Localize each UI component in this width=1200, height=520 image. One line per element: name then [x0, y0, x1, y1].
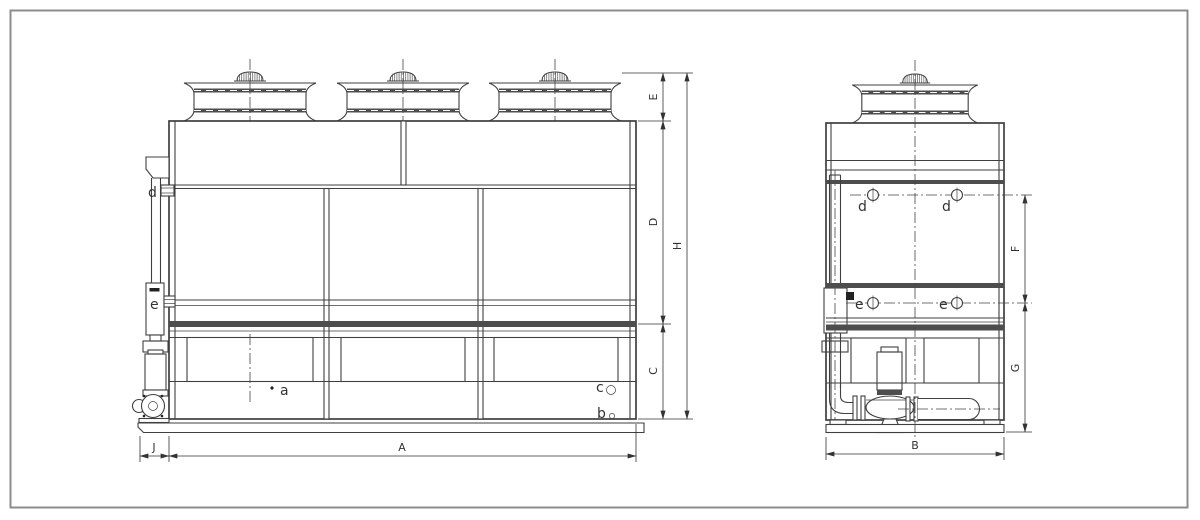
dim-label-A: A	[398, 441, 406, 454]
inlet-bracket	[146, 157, 169, 178]
port-label-e-side-1: e	[855, 297, 864, 313]
dim-label-F: F	[1009, 246, 1022, 252]
valve-box-slot	[150, 288, 160, 292]
dim-label-D: D	[647, 218, 660, 226]
fan-2	[337, 72, 469, 121]
port-label-c: c	[596, 380, 604, 396]
side-foot-left	[830, 420, 846, 425]
pump-neck	[150, 335, 161, 341]
eliminator-band	[169, 321, 636, 327]
fan-3	[489, 72, 621, 121]
side-view: d d e e	[822, 60, 1032, 460]
port-label-d-side-1: d	[858, 199, 867, 215]
coil-mullion-2	[478, 189, 483, 420]
dim-label-G: G	[1009, 364, 1022, 373]
coil-mullion-1	[324, 189, 329, 420]
dim-label-H: H	[671, 242, 684, 250]
base-channel	[138, 423, 644, 433]
dim-label-J: J	[151, 441, 155, 454]
fan-1	[184, 72, 316, 121]
port-label-a: a	[280, 383, 289, 399]
port-label-e-front: e	[150, 297, 159, 313]
port-label-e-side-2: e	[939, 297, 948, 313]
port-e-stub	[164, 296, 175, 307]
front-view: a c b d e	[133, 59, 694, 462]
drawing-sheet: a c b d e	[0, 0, 1200, 520]
pump-base	[139, 419, 169, 423]
dim-label-B: B	[911, 439, 919, 452]
port-label-d-side-2: d	[942, 199, 951, 215]
sensor-square	[846, 292, 854, 300]
cooling-tower-drawing: a c b d e	[0, 0, 1200, 520]
port-label-d-front: d	[148, 185, 157, 201]
dim-label-E: E	[647, 93, 660, 100]
plenum-mullion	[401, 121, 406, 185]
side-foot-right	[984, 420, 1000, 425]
pump-motor	[145, 354, 166, 390]
pump-volute	[142, 395, 165, 418]
dim-label-C: C	[647, 367, 660, 375]
port-label-b: b	[597, 406, 606, 422]
port-a-point	[270, 386, 273, 389]
port-d-stub	[161, 185, 174, 196]
